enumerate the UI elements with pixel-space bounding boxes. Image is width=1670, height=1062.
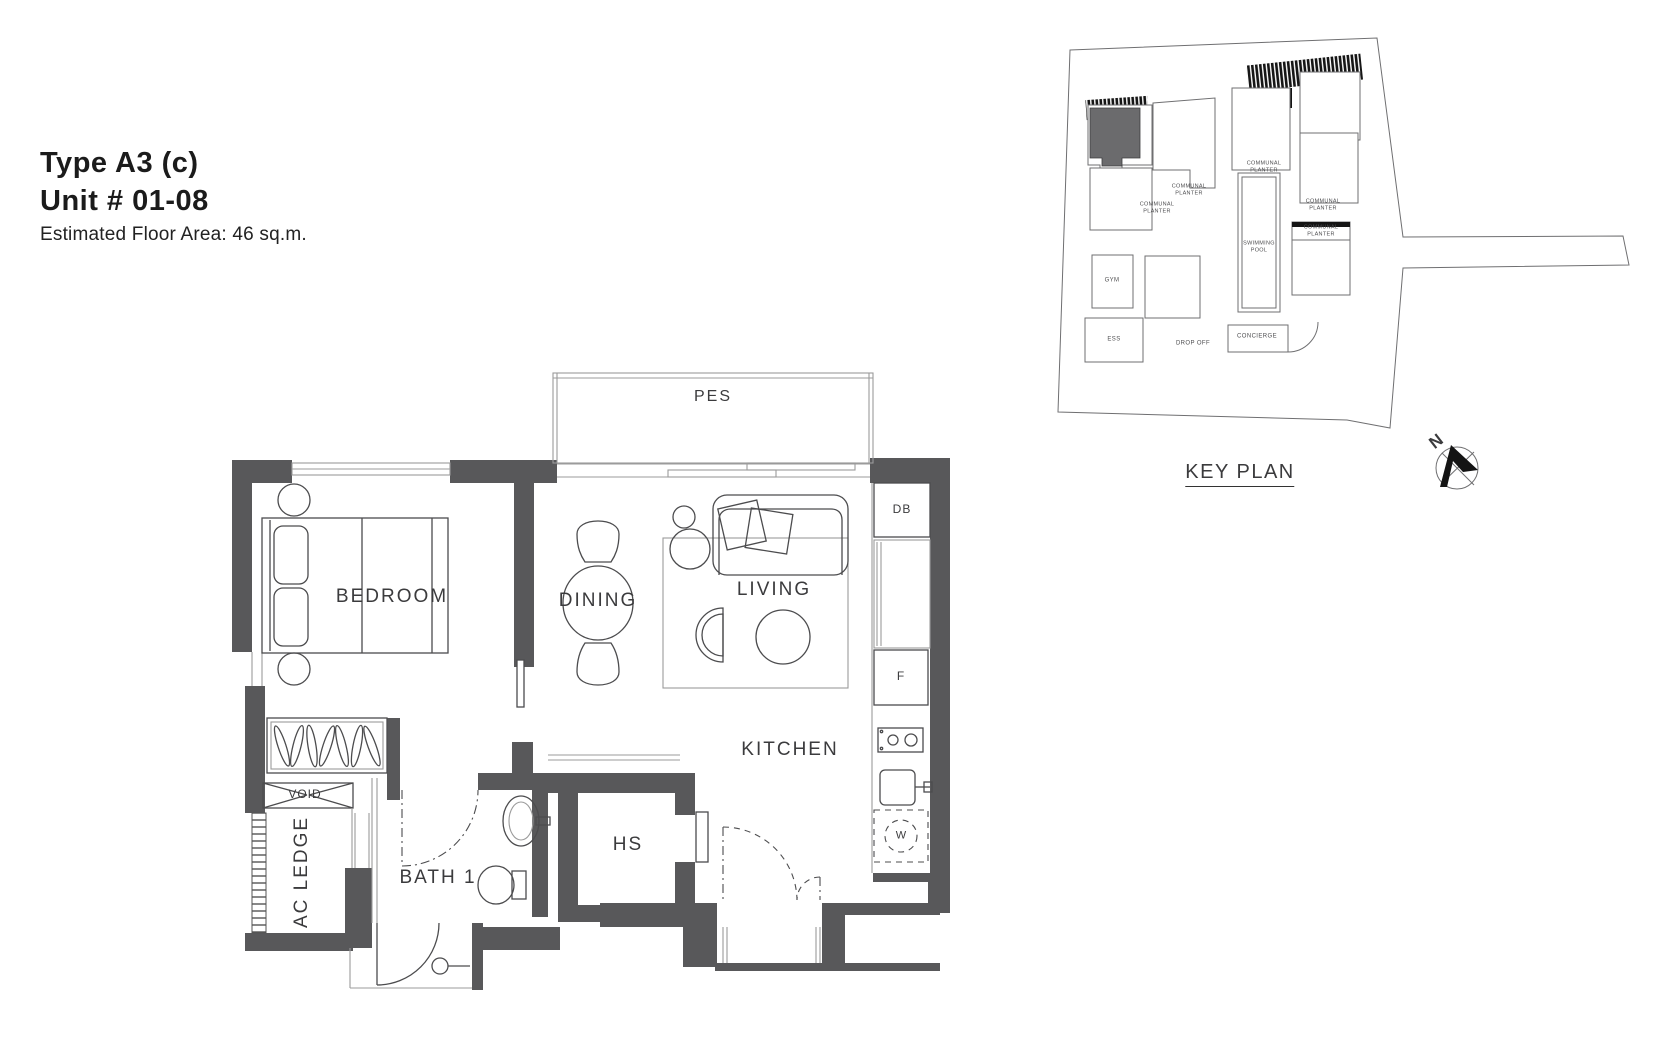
wardrobe xyxy=(267,718,387,773)
key-building-b xyxy=(1153,98,1215,188)
key-building-g xyxy=(1145,256,1200,318)
living-side-table xyxy=(670,529,710,569)
fridge-label: F xyxy=(897,670,905,684)
unit-number-label: Unit # 01-08 xyxy=(40,182,307,220)
living-rug xyxy=(663,538,848,688)
communal-planter-label-3: COMMUNAL PLANTER xyxy=(1247,160,1281,173)
communal-planter-label-5: COMMUNAL PLANTER xyxy=(1304,224,1338,237)
key-clubhouse xyxy=(1292,240,1350,295)
washer-label: W xyxy=(896,830,906,843)
bath-label: BATH 1 xyxy=(399,867,476,889)
bedroom-label: BEDROOM xyxy=(336,586,448,608)
living-label: LIVING xyxy=(737,579,811,601)
living-side-table-small xyxy=(673,506,695,528)
kitchen-sink xyxy=(880,770,932,805)
key-building-c xyxy=(1090,168,1152,230)
ac-ledge-label: AC LEDGE xyxy=(291,816,313,928)
key-plan-title: KEY PLAN xyxy=(1185,461,1294,487)
bedroom-sliding-door xyxy=(517,660,524,707)
ess-label: ESS xyxy=(1107,337,1120,344)
swimming-pool-label: SWIMMING POOL xyxy=(1243,240,1275,253)
bedside-table-top xyxy=(278,484,310,516)
title-block: Type A3 (c) Unit # 01-08 Estimated Floor… xyxy=(40,144,307,246)
hs-label: HS xyxy=(613,834,643,856)
gym-label: GYM xyxy=(1105,278,1120,285)
bath-door xyxy=(402,790,478,866)
sofa xyxy=(713,495,848,575)
communal-planter-label-1: COMMUNAL PLANTER xyxy=(1172,183,1206,196)
north-compass-icon xyxy=(1436,445,1478,489)
void-label: VOID xyxy=(288,788,321,802)
entry-recess xyxy=(723,927,820,963)
key-building-d xyxy=(1232,88,1290,170)
entry-doors xyxy=(723,827,820,900)
communal-planter-label-4: COMMUNAL PLANTER xyxy=(1306,198,1340,211)
corridor-lines xyxy=(548,755,680,760)
concierge-label: CONCIERGE xyxy=(1237,334,1277,341)
key-plan-drawing xyxy=(1058,38,1629,428)
coffee-table-d xyxy=(696,608,723,662)
floor-plan-sheet: Type A3 (c) Unit # 01-08 Estimated Floor… xyxy=(0,0,1670,1062)
communal-planter-label-2: COMMUNAL PLANTER xyxy=(1140,201,1174,214)
hs-door xyxy=(696,812,708,862)
bath-walls-lines xyxy=(372,778,377,923)
toilet xyxy=(478,866,526,904)
drop-off-label: DROP OFF xyxy=(1176,341,1210,348)
hob xyxy=(878,728,923,752)
dining-label: DINING xyxy=(559,590,638,612)
key-building-f xyxy=(1300,133,1358,203)
tall-unit xyxy=(874,540,930,648)
bedside-table-bottom xyxy=(278,653,310,685)
coffee-table-round xyxy=(756,610,810,664)
plan-type-label: Type A3 (c) xyxy=(40,144,307,182)
kitchen-label: KITCHEN xyxy=(741,739,838,761)
key-building-e xyxy=(1300,72,1360,140)
pes-label: PES xyxy=(694,388,732,406)
key-highlighted-unit xyxy=(1090,108,1140,166)
floor-area-label: Estimated Floor Area: 46 sq.m. xyxy=(40,224,307,246)
db-label: DB xyxy=(893,503,912,517)
